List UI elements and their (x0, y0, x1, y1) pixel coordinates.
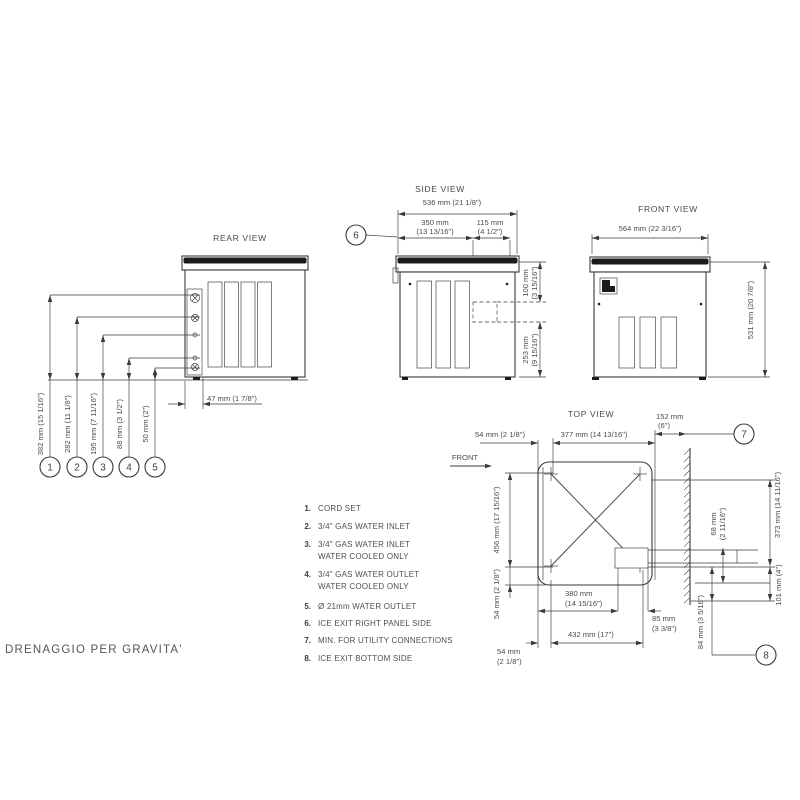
dim-label-100-l2: (3 15/16") (530, 266, 539, 300)
front-view-label: FRONT VIEW (638, 204, 698, 214)
callout-4: 4 (126, 463, 132, 474)
technical-drawing: REAR VIEW (0, 0, 800, 800)
dim-label-54-left: 54 mm (2 1/8") (492, 569, 501, 619)
dim-label-84: 84 mm (3 5/16") (696, 594, 705, 649)
dim-label-68-l1: 68 mm (709, 512, 718, 535)
rear-view-label: REAR VIEW (213, 233, 267, 243)
dim-label-377: 377 mm (14 13/16") (561, 430, 628, 439)
front-screw-left (598, 303, 601, 306)
legend-item-6: ICE EXIT RIGHT PANEL SIDE (318, 619, 432, 628)
legend-item-3: 3/4" GAS WATER INLET (318, 540, 410, 549)
dim-label-253-l1: 253 mm (521, 336, 530, 363)
rear-foot-right (291, 377, 298, 380)
legend-num-2: 2. (304, 522, 311, 531)
legend-item-5: Ø 21mm WATER OUTLET (318, 602, 416, 611)
rear-lid-band (184, 258, 307, 264)
dim-label-68-l2: (2 11/16") (718, 507, 727, 540)
rear-callouts: 1 2 3 4 5 (40, 457, 165, 477)
front-foot-left (592, 377, 599, 380)
callout-7: 7 (741, 430, 747, 441)
legend-num-1: 1. (304, 504, 311, 513)
side-foot-right (505, 377, 511, 380)
dim-label-54-top: 54 mm (2 1/8") (475, 430, 525, 439)
dim-label-564: 564 mm (22 3/16") (619, 224, 682, 233)
front-direction-label: FRONT (452, 453, 479, 462)
dim-label-282: 282 mm (11 1/8") (63, 395, 72, 453)
dim-label-100-l1: 100 mm (521, 269, 530, 296)
legend-item-8: ICE EXIT BOTTOM SIDE (318, 654, 412, 663)
dim-label-54-bot-l2: (2 1/8") (497, 657, 522, 666)
rear-view: REAR VIEW (36, 233, 308, 477)
legend-item-1: CORD SET (318, 504, 361, 513)
callout-2: 2 (74, 463, 80, 474)
dim-label-382: 382 mm (15 1/16") (36, 392, 45, 455)
dim-label-195: 195 mm (7 11/16") (89, 393, 98, 456)
dim-label-350-l1: 350 mm (421, 218, 448, 227)
callout-6: 6 (353, 231, 359, 242)
dim-label-152-l2: (6") (658, 421, 670, 430)
dim-label-432: 432 mm (17") (568, 630, 614, 639)
top-view-label: TOP VIEW (568, 409, 615, 419)
legend-num-5: 5. (304, 602, 311, 611)
dim-label-380-l2: (14 15/16") (565, 599, 603, 608)
front-view: FRONT VIEW 564 mm (22 3/16") (590, 204, 770, 380)
dim-label-54-bot-l1: 54 mm (497, 647, 520, 656)
dim-label-152-l1: 152 mm (656, 412, 683, 421)
callout-5: 5 (152, 463, 158, 474)
callout-1: 1 (47, 463, 53, 474)
dim-label-115-l2: (4 1/2") (478, 227, 503, 236)
rear-machine-body (185, 270, 305, 377)
legend-num-8: 8. (304, 654, 311, 663)
dim-label-101: 101 mm (4") (774, 564, 783, 606)
legend-item-3-line2: WATER COOLED ONLY (318, 552, 409, 561)
dim-label-50: 50 mm (2") (141, 405, 150, 443)
dim-label-47: 47 mm (1 7/8") (207, 394, 257, 403)
dim-label-456: 456 mm (17 15/16") (492, 486, 501, 553)
legend-num-7: 7. (304, 636, 311, 645)
legend-num-3: 3. (304, 540, 311, 549)
dim-label-536: 536 mm (21 1/8") (423, 198, 482, 207)
legend: 1. CORD SET 2. 3/4" GAS WATER INLET 3. 3… (304, 504, 452, 663)
legend-item-4: 3/4" GAS WATER OUTLET (318, 570, 419, 579)
dim-label-380-l1: 380 mm (565, 589, 592, 598)
dim-label-350-l2: (13 13/16") (416, 227, 454, 236)
side-lid-band (398, 258, 518, 264)
legend-item-4-line2: WATER COOLED ONLY (318, 582, 409, 591)
legend-item-2: 3/4" GAS WATER INLET (318, 522, 410, 531)
dim-label-373: 373 mm (14 11/16") (773, 471, 782, 538)
side-view-label: SIDE VIEW (415, 184, 465, 194)
footer-note: DRENAGGIO PER GRAVITA' (5, 644, 183, 656)
rear-foot-left (193, 377, 200, 380)
side-foot-left (402, 377, 408, 380)
legend-num-4: 4. (304, 570, 311, 579)
wall-hatching (684, 448, 690, 605)
callout-8: 8 (763, 651, 769, 662)
front-screw-right (700, 303, 703, 306)
front-lid-band (592, 259, 709, 265)
dim-label-88: 88 mm (3 1/2") (115, 399, 124, 449)
top-view: TOP VIEW FRONT (450, 409, 783, 666)
side-screw-right (506, 283, 509, 286)
side-screw-left (409, 283, 412, 286)
legend-num-6: 6. (304, 619, 311, 628)
legend-item-7: MIN. FOR UTILITY CONNECTIONS (318, 636, 453, 645)
brand-logo (600, 278, 617, 294)
drawing-page: REAR VIEW (0, 0, 800, 800)
dim-label-85-l1: 85 mm (652, 614, 675, 623)
dim-label-253-l2: (9 15/16") (530, 333, 539, 367)
dim-label-85-l2: (3 3/8") (652, 624, 677, 633)
front-foot-right (699, 377, 706, 380)
dim-label-531: 531 mm (20 7/8") (746, 280, 755, 339)
side-view: SIDE VIEW 536 mm (21 1/8") 350 mm (13 13… (346, 184, 546, 380)
dim-label-115-l1: 115 mm (477, 218, 504, 227)
callout-3: 3 (100, 463, 106, 474)
